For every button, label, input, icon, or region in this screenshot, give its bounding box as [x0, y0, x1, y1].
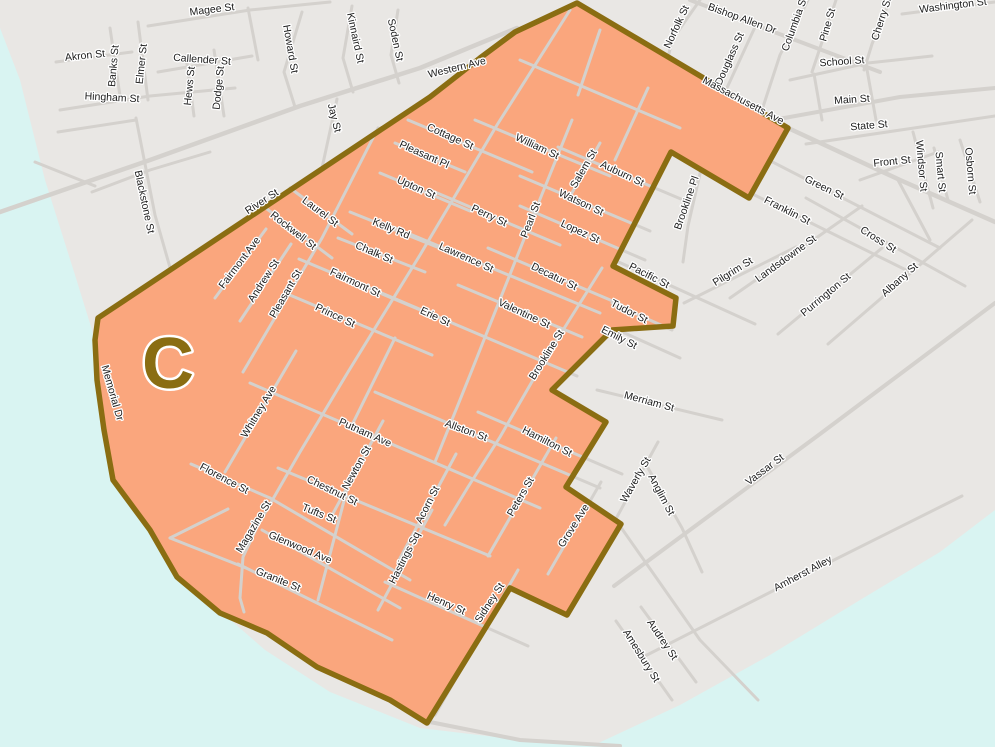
map-canvas: C Magee StAkron StBanks StElmer StCallen… [0, 0, 995, 747]
zone-label-group: C [142, 324, 194, 404]
map-page: C Magee StAkron StBanks StElmer StCallen… [0, 0, 995, 747]
street-label: Main St [834, 93, 870, 107]
zone-c-label: C [142, 324, 194, 404]
